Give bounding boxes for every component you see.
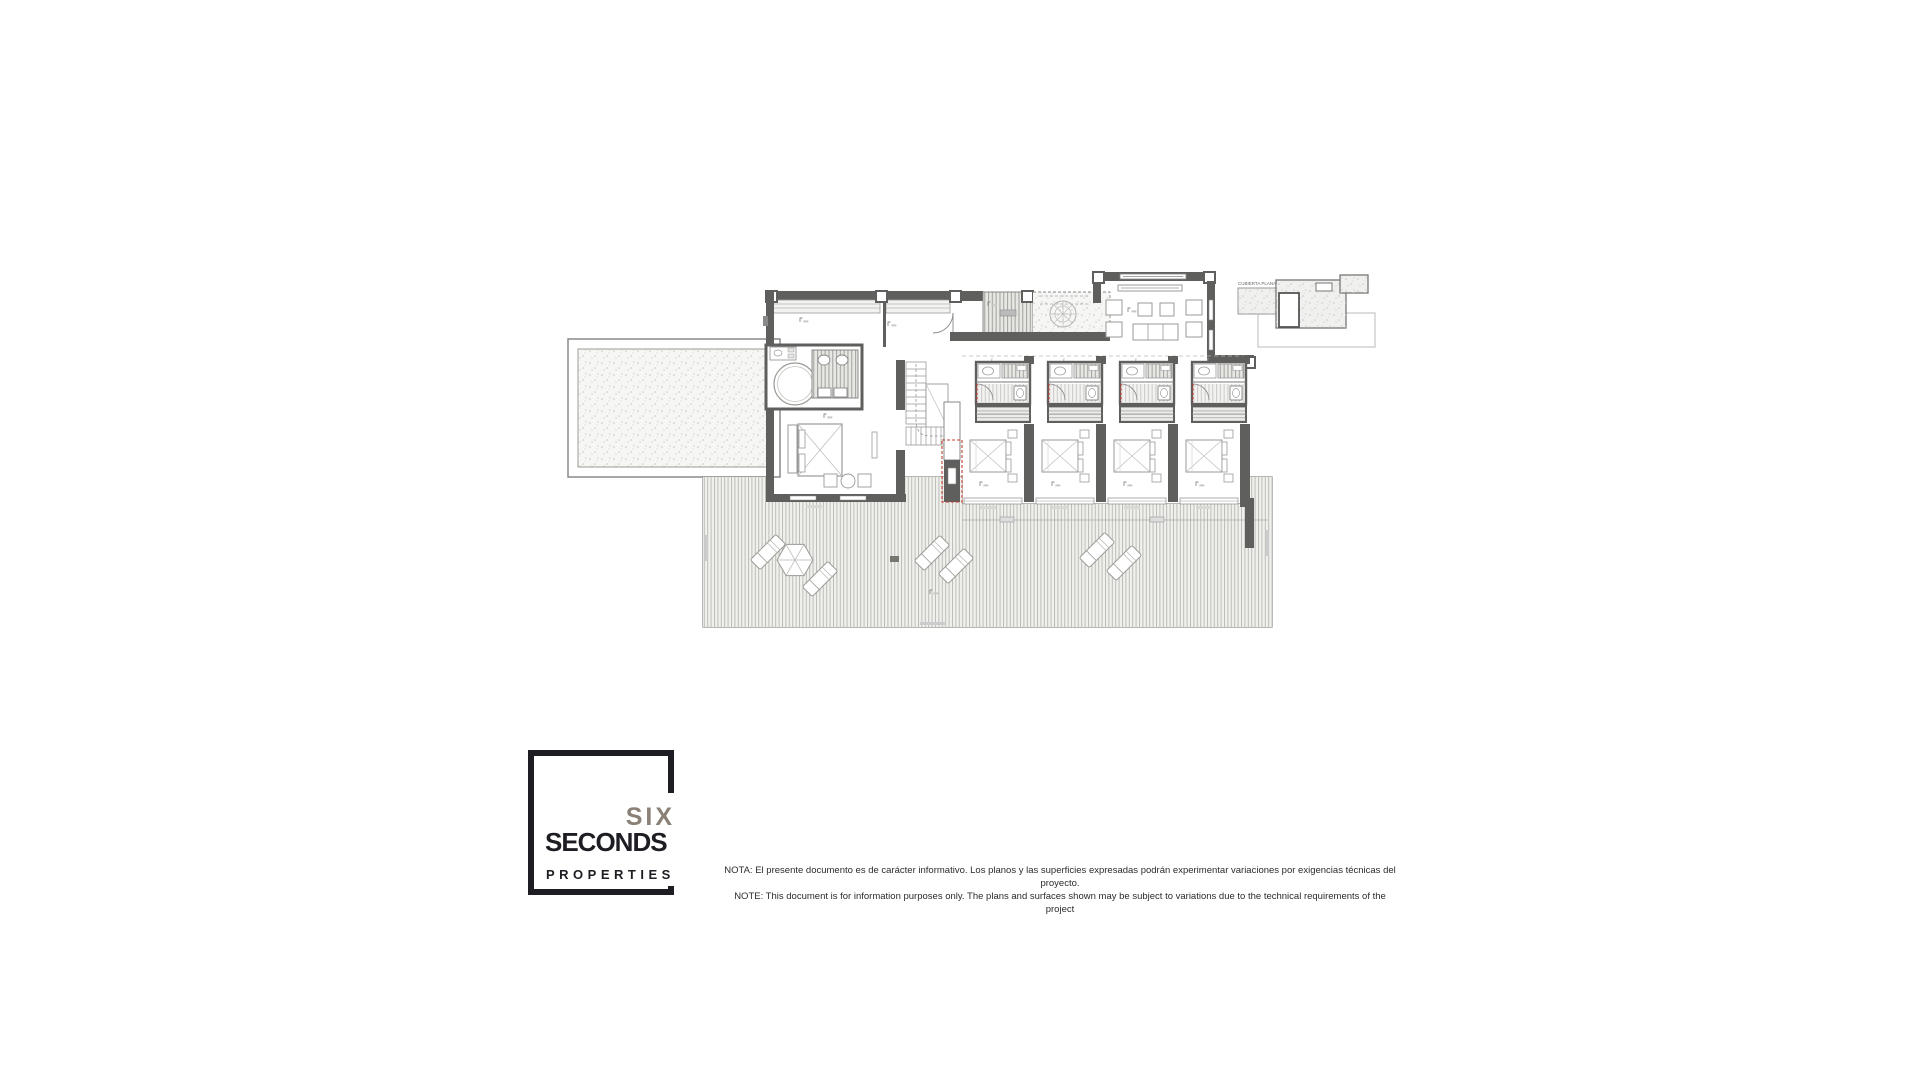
- master-bathroom: [766, 345, 862, 409]
- inset-label: CUBIERTA PLANA: [1238, 281, 1276, 286]
- lift-shaft: [942, 402, 962, 502]
- disclaimer: NOTA: El presente documento es de caráct…: [719, 864, 1401, 916]
- bedroom-module-1: [964, 356, 1034, 509]
- pool: [568, 339, 780, 477]
- key-plan-inset: CUBIERTA PLANA: [1238, 275, 1375, 347]
- bedroom-module-4: [1180, 356, 1250, 509]
- north-wing: [763, 291, 962, 347]
- disclaimer-line-es: NOTA: El presente documento es de caráct…: [719, 864, 1401, 890]
- logo-word-seconds: SECONDS: [545, 827, 667, 858]
- brand-logo: SIX SECONDS PROPERTIES: [528, 750, 674, 895]
- living-room: [1093, 272, 1255, 369]
- logo-word-properties: PROPERTIES: [546, 867, 675, 882]
- patio-tree: [1050, 301, 1076, 327]
- disclaimer-line-en: NOTE: This document is for information p…: [719, 890, 1401, 916]
- floor-plan: CUBIERTA PLANA: [0, 0, 1920, 1080]
- bedroom-module-2: [1036, 356, 1106, 509]
- bedroom-module-3: [1108, 356, 1178, 509]
